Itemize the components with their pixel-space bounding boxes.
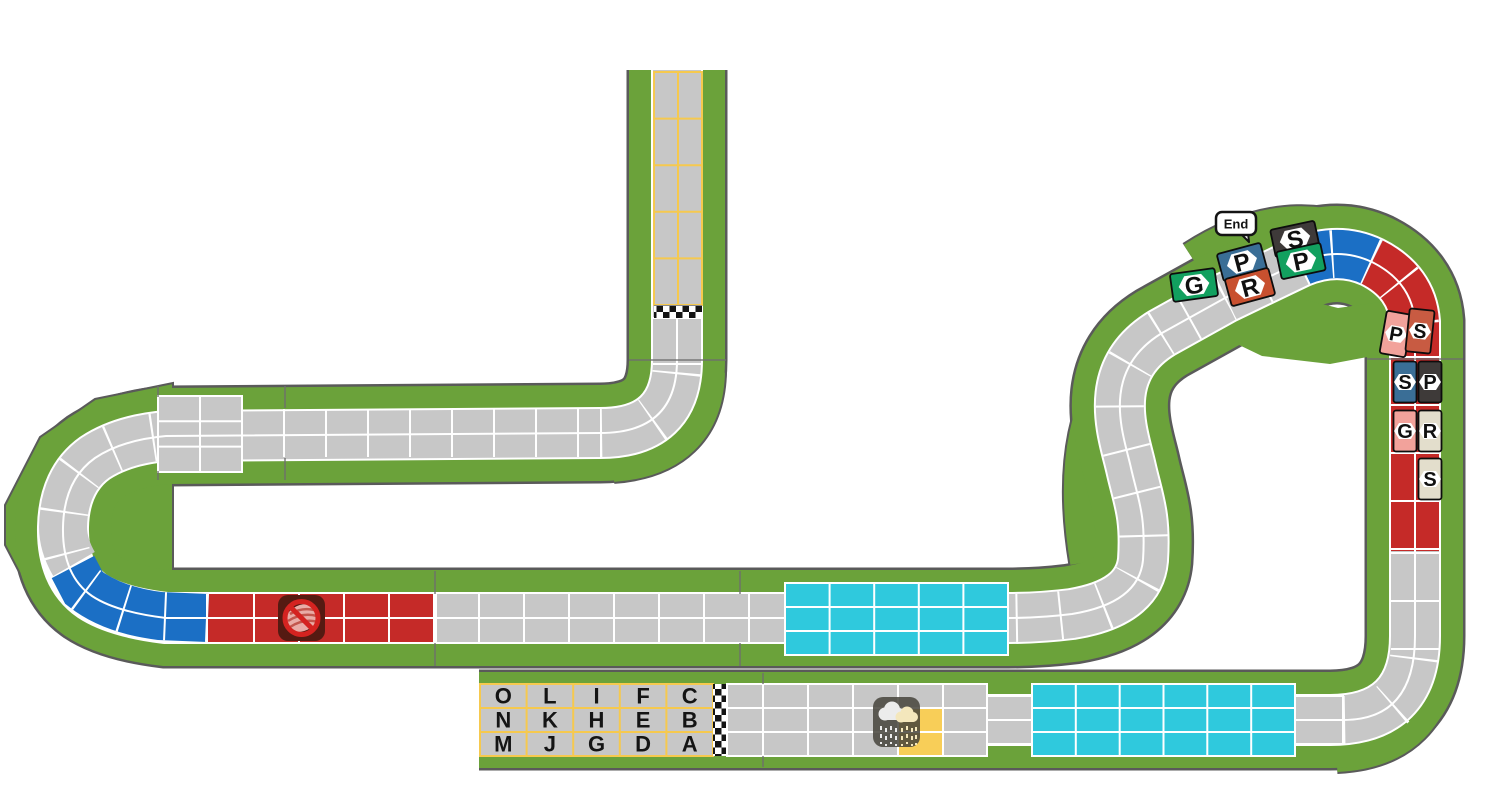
finish-line-checker [654,305,702,318]
grid-cell-letter-E: E [636,708,651,733]
grid-cell-letter-O: O [495,684,512,709]
grid-cell-letter-C: C [682,684,698,709]
grid-cell-letter-F: F [636,684,649,709]
road-widening-block [158,396,242,472]
no-slipstream-icon [278,595,325,641]
start-line-checker [713,684,727,756]
rider-blue-S-letter: S [1398,372,1411,394]
rider-black-P[interactable]: P [1419,362,1442,403]
grid-cell-letter-I: I [593,684,599,709]
grid-cell-letter-G: G [588,732,605,757]
grid-cell-letter-D: D [635,732,651,757]
supply-zone-cyan-bottom [1032,684,1295,756]
grid-cell-letter-K: K [542,708,558,733]
grid-cell-letter-A: A [682,732,698,757]
race-track-board: OLIFCNKHEBMJGDA GPRSPPSSPGRS End [0,0,1487,792]
rider-blue-S[interactable]: S [1394,362,1417,403]
rider-green-G-letter: G [1183,271,1205,300]
rider-beige-S[interactable]: S [1419,459,1442,500]
rider-green-G[interactable]: G [1170,268,1219,302]
rider-black-P-letter: P [1423,372,1436,394]
grid-cell-letter-B: B [682,708,698,733]
grid-cell-letter-M: M [494,732,512,757]
grid-cell-letter-J: J [544,732,556,757]
rider-beige-R-letter: R [1423,421,1438,443]
grid-cell-letter-N: N [495,708,511,733]
rider-pink-G[interactable]: G [1394,411,1417,452]
end-marker-label: End [1224,217,1249,232]
rider-beige-R[interactable]: R [1419,411,1442,452]
rider-salmon-S[interactable]: S [1405,308,1434,353]
road-s-curve [786,262,1300,618]
rain-cloud-icon [873,697,920,747]
rider-beige-S-letter: S [1423,469,1436,491]
rider-salmon-S-letter: S [1412,320,1428,343]
supply-zone-cyan-middle [785,583,1008,655]
rider-pink-G-letter: G [1397,421,1413,443]
grid-cell-letter-L: L [543,684,556,709]
track-svg: OLIFCNKHEBMJGDA GPRSPPSSPGRS End [0,0,1487,792]
grid-cell-letter-H: H [589,708,605,733]
bottom-straight-cells [727,684,987,756]
